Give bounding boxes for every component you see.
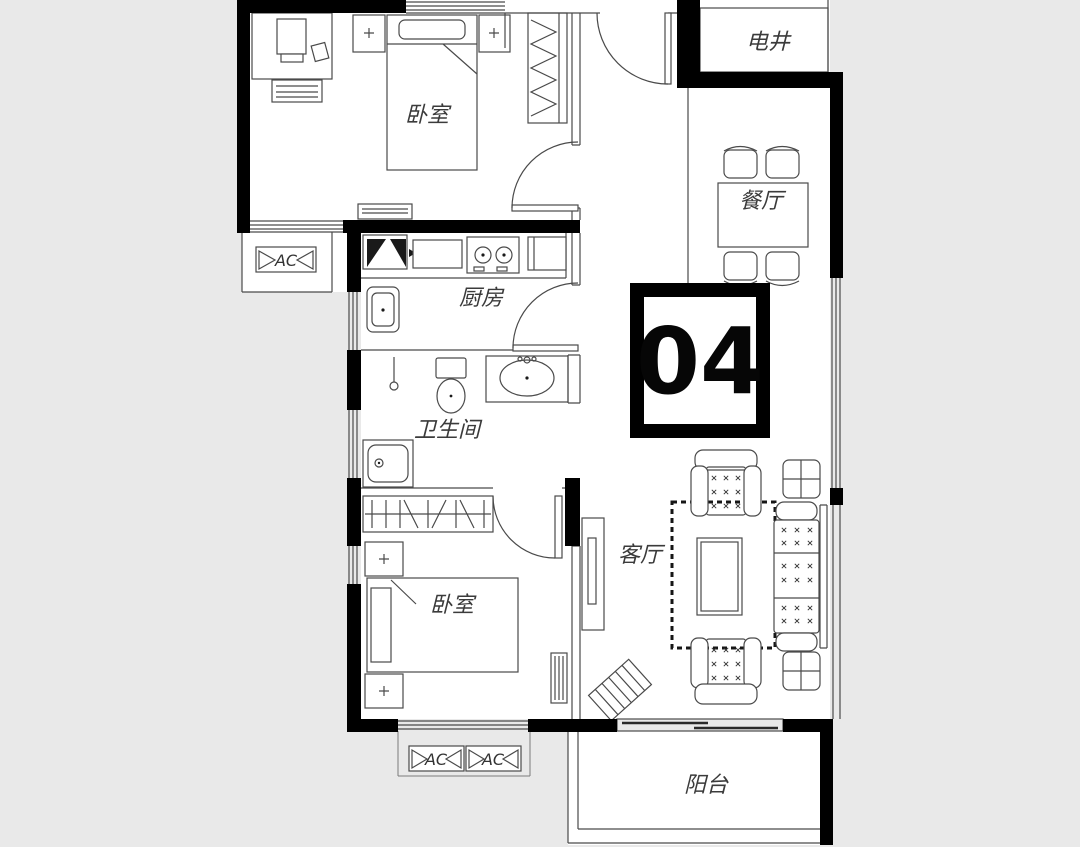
cabinet (528, 237, 566, 270)
room-label-dining-room: 餐厅 (739, 189, 787, 214)
unit-number-badge: 04 (636, 290, 764, 431)
ac-label: AC (274, 251, 298, 270)
ac-unit: AC (409, 746, 464, 771)
ac-unit: AC (256, 247, 316, 272)
nightstand (365, 674, 403, 708)
floor-plan: AC AC AC 04 卧室 厨房 卫生间 卧室 客厅 餐厅 电井 阳台 (0, 0, 1080, 847)
room-label-bedroom-bottom: 卧室 (430, 593, 477, 618)
room-label-kitchen: 厨房 (459, 286, 505, 311)
wardrobe (363, 496, 493, 532)
wardrobe (528, 13, 567, 123)
sofa (774, 502, 827, 651)
unit-number: 04 (636, 308, 764, 415)
radiator (358, 204, 412, 219)
sink (367, 287, 399, 332)
bed (387, 15, 477, 170)
ac-unit: AC (466, 746, 521, 771)
nightstand (353, 15, 385, 52)
ac-label: AC (481, 750, 505, 769)
washbasin-vanity (486, 356, 568, 402)
room-label-utility-shaft: 电井 (746, 30, 792, 55)
shower (363, 440, 413, 487)
coffee-table (697, 538, 742, 615)
nightstand (365, 542, 403, 576)
room-label-bathroom: 卫生间 (414, 418, 483, 443)
ac-label: AC (424, 750, 448, 769)
room-label-living-room: 客厅 (618, 543, 666, 568)
side-table (783, 460, 820, 498)
room-label-balcony: 阳台 (684, 773, 729, 798)
stove (467, 237, 519, 273)
dining-chair (724, 147, 757, 179)
dining-chair (724, 252, 757, 286)
radiator (551, 653, 567, 703)
tv-stand (582, 518, 604, 630)
side-table (783, 652, 820, 690)
room-label-bedroom-top: 卧室 (405, 103, 452, 128)
dining-chair (766, 252, 799, 286)
dining-chair (766, 147, 799, 179)
counter (413, 240, 462, 268)
floor-plan-canvas: AC AC AC 04 卧室 厨房 卫生间 卧室 客厅 餐厅 电井 阳台 (0, 0, 1080, 847)
sliding-door (617, 719, 783, 731)
